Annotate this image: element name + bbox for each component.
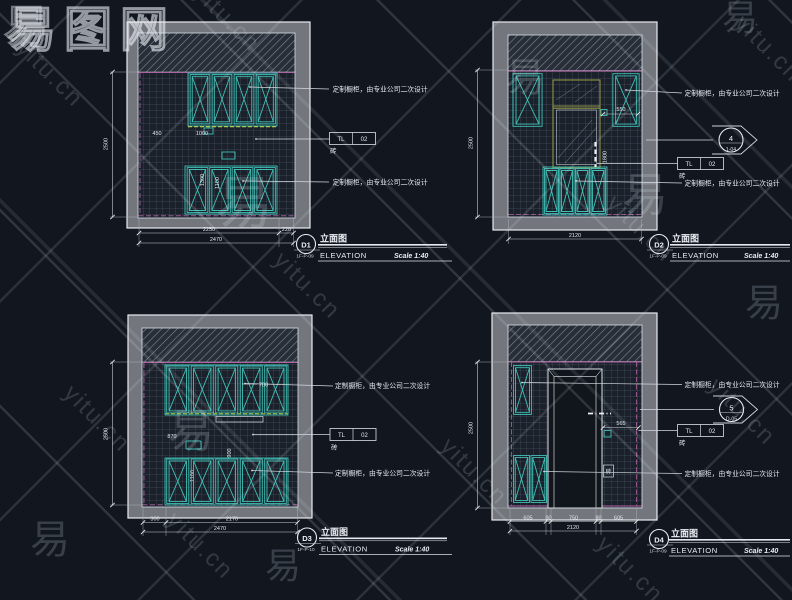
d4-dim-605a: 605 <box>523 516 532 522</box>
d1-title-block: D1 1F-P-09 立面图 ELEVATION Scale 1:40 <box>294 233 452 262</box>
d2-scale: Scale 1:40 <box>744 253 778 260</box>
d2-marker-ref: 1-04 <box>726 147 736 153</box>
d4-tag-material: 砖 <box>679 438 686 447</box>
d4-dim-750: 750 <box>569 516 578 522</box>
d4-ceiling-hatch <box>509 326 642 362</box>
d1-tag-num: 02 <box>361 137 368 143</box>
d4-dim-605b: 605 <box>614 516 623 522</box>
d1-dim-1100: 1100 <box>215 177 221 189</box>
d3-dim-2470: 2470 <box>214 526 226 532</box>
d1-dim-1000: 1000 <box>196 131 208 137</box>
d1-dim-220: 220 <box>282 227 291 233</box>
svg-text:定制橱柜，由专业公司二次设计: 定制橱柜，由专业公司二次设计 <box>685 469 780 478</box>
d2-dim-2120: 2120 <box>569 233 581 239</box>
d1-title-cn: 立面图 <box>320 233 347 244</box>
d4-marker-ref: D-05 <box>726 417 737 423</box>
d2-tag-code: TL <box>685 162 693 168</box>
d3-dim-900: 900 <box>227 448 233 457</box>
d4-door-opening <box>548 369 602 508</box>
d3-id: D3 <box>302 534 312 543</box>
d1-sheet: 1F-P-09 <box>296 254 314 260</box>
d3-sheet: 1F-P-10 <box>297 547 315 553</box>
svg-text:砖: 砖 <box>606 468 612 476</box>
d3-tag-num: 02 <box>361 433 368 439</box>
d4-dim-2120: 2120 <box>567 525 579 531</box>
d3-title-block: D3 1F-P-10 立面图 ELEVATION Scale 1:40 <box>295 526 452 555</box>
d4-scale: Scale 1:40 <box>744 548 778 555</box>
d1-tag-material: 砖 <box>330 146 337 155</box>
d3-dim-height: 2500 <box>104 428 110 440</box>
svg-text:定制橱柜，由专业公司二次设计: 定制橱柜，由专业公司二次设计 <box>335 469 430 478</box>
d4-section-marker: 5 D-05 <box>640 396 758 423</box>
elevation-drawings: 450 1000 1300 1100 2500 2250 220 2470 定制… <box>0 0 792 600</box>
d2-tag-material: 砖 <box>679 171 686 180</box>
panel-d3: 700 870 900 1100 2500 300 2170 <box>104 315 453 555</box>
d4-sheet: 1F-P-09 <box>649 549 667 555</box>
d2-dim-height: 2500 <box>469 137 475 149</box>
d1-dim-450: 450 <box>152 131 161 137</box>
d4-dim-80a: 80 <box>545 516 551 522</box>
d1-id: D1 <box>301 241 311 250</box>
svg-text:定制橱柜，由专业公司二次设计: 定制橱柜，由专业公司二次设计 <box>685 89 780 98</box>
cad-sheet: 450 1000 1300 1100 2500 2250 220 2470 定制… <box>0 0 792 600</box>
d2-id: D2 <box>654 241 664 250</box>
d2-ceiling-hatch <box>509 36 642 71</box>
d3-dim-300: 300 <box>150 517 159 523</box>
d4-title-en: ELEVATION <box>671 546 718 555</box>
d2-sheet: 1F-P-09 <box>649 254 667 260</box>
d1-dim-1300: 1300 <box>200 174 206 186</box>
svg-text:定制橱柜，由专业公司二次设计: 定制橱柜，由专业公司二次设计 <box>685 380 780 389</box>
d4-title-cn: 立面图 <box>671 528 698 539</box>
d3-title-cn: 立面图 <box>321 526 348 537</box>
d1-tag-code: TL <box>337 137 345 143</box>
d4-title-block: D4 1F-P-09 立面图 ELEVATION Scale 1:40 <box>647 528 790 557</box>
d3-tag-code: TL <box>338 433 346 439</box>
panel-d1: 450 1000 1300 1100 2500 2250 220 2470 定制… <box>104 22 453 261</box>
d1-dim-2470: 2470 <box>210 237 222 243</box>
svg-text:定制橱柜，由专业公司二次设计: 定制橱柜，由专业公司二次设计 <box>335 381 430 390</box>
d4-dim-height: 2500 <box>469 422 475 434</box>
d2-tile-grid <box>509 71 642 217</box>
d1-tile-grid <box>139 72 295 218</box>
d3-dim-870: 870 <box>167 434 176 440</box>
svg-text:定制橱柜，由专业公司二次设计: 定制橱柜，由专业公司二次设计 <box>333 85 428 94</box>
svg-text:定制橱柜，由专业公司二次设计: 定制橱柜，由专业公司二次设计 <box>685 179 780 188</box>
d2-marker-num: 4 <box>729 134 733 143</box>
panel-d4: 565 砖 5 D-05 TL 02 砖 定制橱柜，由专业 <box>469 313 791 556</box>
d1-scale: Scale 1:40 <box>394 253 428 260</box>
d3-ceiling-hatch <box>143 329 298 363</box>
panel-d2: 550 1800 4 1-04 TL 02 砖 定制橱柜，由专业公司二次设计 <box>469 22 791 261</box>
d4-marker-num: 5 <box>729 404 733 413</box>
d2-dim-1800: 1800 <box>603 151 609 163</box>
d2-title-en: ELEVATION <box>672 251 719 260</box>
d1-title-en: ELEVATION <box>320 251 367 260</box>
d2-title-cn: 立面图 <box>672 233 699 244</box>
d4-tag-code: TL <box>685 429 693 435</box>
d2-title-block: D2 1F-P-09 立面图 ELEVATION Scale 1:40 <box>647 233 790 262</box>
d1-dim-2250: 2250 <box>203 227 215 233</box>
d4-dim-80b: 80 <box>595 516 601 522</box>
d4-id: D4 <box>654 536 664 545</box>
svg-text:565: 565 <box>616 421 625 427</box>
d1-dim-height: 2500 <box>104 138 110 150</box>
d3-tag-material: 砖 <box>331 443 338 452</box>
d2-tag-num: 02 <box>709 162 716 168</box>
svg-text:550: 550 <box>616 107 625 113</box>
d2-section-marker: 4 1-04 <box>646 126 757 154</box>
d1-ceiling-hatch <box>139 34 295 73</box>
d3-title-en: ELEVATION <box>321 545 368 554</box>
d3-scale: Scale 1:40 <box>395 547 429 554</box>
d3-dim-2170: 2170 <box>226 517 238 523</box>
svg-text:定制橱柜，由专业公司二次设计: 定制橱柜，由专业公司二次设计 <box>333 178 428 187</box>
svg-text:700: 700 <box>259 383 268 389</box>
d4-tag-num: 02 <box>709 429 716 435</box>
